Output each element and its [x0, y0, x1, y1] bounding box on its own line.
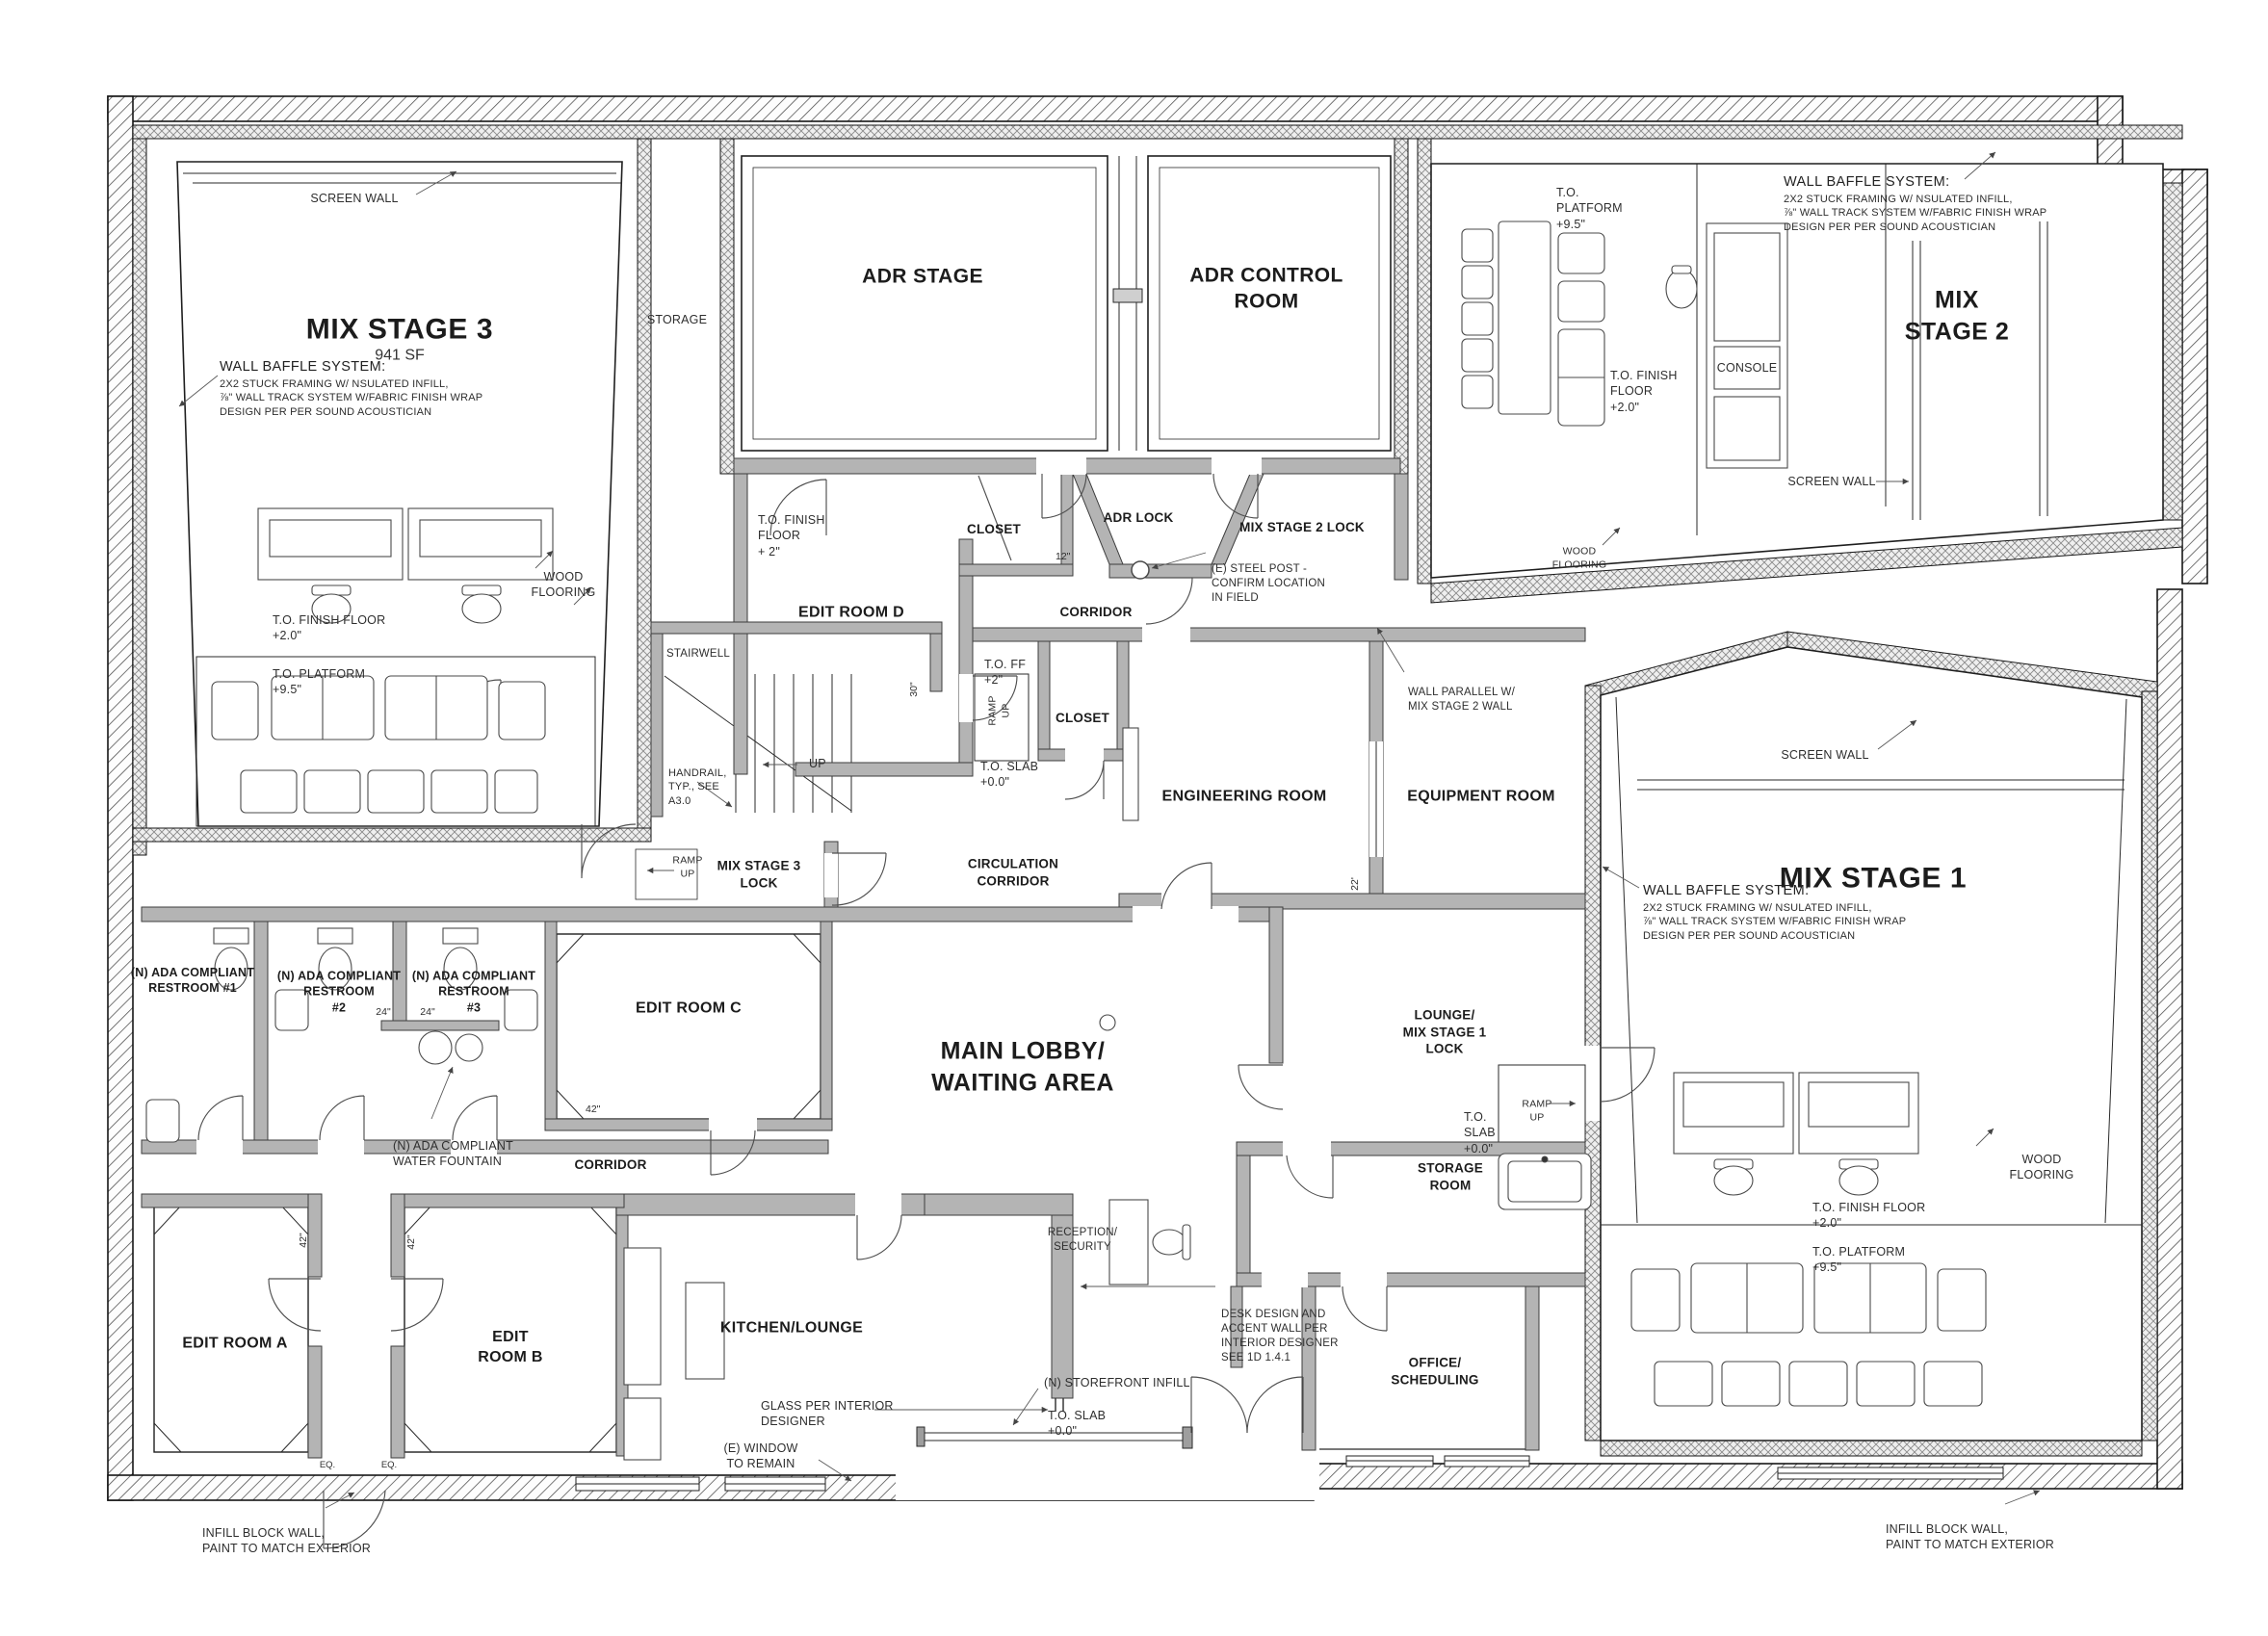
screen-wall-note-ms1: SCREEN WALL: [1781, 747, 1868, 763]
room-label-storage-room: STORAGE ROOM: [1418, 1159, 1483, 1193]
level-ff-ms2: T.O. FINISH FLOOR +2.0": [1610, 368, 1678, 415]
room-label-adr-stage: ADR STAGE: [862, 263, 983, 289]
room-label-ms2-lock: MIX STAGE 2 LOCK: [1239, 519, 1365, 536]
baffle-title-ms2: WALL BAFFLE SYSTEM:: [1784, 173, 1950, 192]
room-label-adr-control: ADR CONTROL ROOM: [1189, 263, 1343, 316]
level-toff: T.O. FF +2": [984, 657, 1026, 688]
ramp-up-stair: RAMP UP: [986, 695, 1012, 725]
dim-42-c: 42": [586, 1104, 600, 1117]
room-label-corridor-south: CORRIDOR: [574, 1156, 646, 1174]
room-label-edit-c: EDIT ROOM C: [636, 1000, 742, 1020]
room-label-kitchen: KITCHEN/LOUNGE: [720, 1319, 863, 1339]
level-ff-editd: T.O. FINISH FLOOR + 2": [758, 512, 825, 559]
up-note: UP: [809, 756, 826, 771]
wood-flooring-ms3: WOOD FLOORING: [532, 569, 596, 601]
dim-24-a: 24": [376, 1006, 390, 1020]
room-label-closet-mid: CLOSET: [1056, 710, 1109, 727]
handrail-note: HANDRAIL, TYP., SEE A3.0: [668, 766, 726, 808]
room-label-mix-stage-3: MIX STAGE 3: [306, 311, 493, 349]
baffle-body-ms2: 2X2 STUCK FRAMING W/ NSULATED INFILL, ⅞"…: [1784, 193, 2046, 234]
room-label-equipment: EQUIPMENT ROOM: [1407, 788, 1555, 808]
room-label-ms3-lock: MIX STAGE 3 LOCK: [717, 857, 801, 891]
baffle-title-ms3: WALL BAFFLE SYSTEM:: [220, 358, 386, 377]
room-label-main-lobby: MAIN LOBBY/ WAITING AREA: [931, 1036, 1114, 1099]
level-ff-ms3: T.O. FINISH FLOOR +2.0": [273, 612, 385, 644]
dim-eq-b: EQ.: [381, 1460, 397, 1471]
room-label-adr-lock: ADR LOCK: [1104, 509, 1174, 527]
room-label-office: OFFICE/ SCHEDULING: [1391, 1354, 1478, 1388]
level-platform-ms2: T.O. PLATFORM +9.5": [1556, 185, 1623, 232]
dim-24-b: 24": [420, 1006, 434, 1020]
storefront-note: (N) STOREFRONT INFILL: [1044, 1375, 1190, 1390]
steel-post-note: (E) STEEL POST - CONFIRM LOCATION IN FIE…: [1212, 562, 1325, 606]
dim-22: 22': [1349, 877, 1363, 891]
dim-42-b: 42": [405, 1234, 419, 1249]
baffle-body-ms3: 2X2 STUCK FRAMING W/ NSULATED INFILL, ⅞"…: [220, 377, 482, 419]
room-label-mix-stage-2: MIX STAGE 2: [1905, 285, 2010, 348]
screen-wall-note-ms3: SCREEN WALL: [310, 191, 398, 206]
level-slab-closet: T.O. SLAB +0.0": [980, 759, 1038, 791]
room-label-closet-north: CLOSET: [967, 521, 1021, 538]
room-label-lounge-lock: LOUNGE/ MIX STAGE 1 LOCK: [1403, 1007, 1487, 1058]
wall-parallel-note: WALL PARALLEL W/ MIX STAGE 2 WALL: [1408, 686, 1515, 714]
baffle-title-ms1: WALL BAFFLE SYSTEM:: [1643, 882, 1810, 900]
dim-12: 12": [1056, 551, 1070, 564]
floor-plan: MIX STAGE 3 941 SF SCREEN WALL WALL BAFF…: [0, 0, 2268, 1636]
room-label-storage-chase: STORAGE: [647, 312, 707, 327]
room-label-edit-a: EDIT ROOM A: [182, 1335, 287, 1355]
level-platform-ms3: T.O. PLATFORM +9.5": [273, 666, 365, 698]
desk-design-note: DESK DESIGN AND ACCENT WALL PER INTERIOR…: [1221, 1308, 1339, 1365]
room-label-restroom-1: (N) ADA COMPLIANT RESTROOM #1: [131, 965, 254, 997]
room-label-reception: RECEPTION/ SECURITY: [1048, 1226, 1117, 1255]
dim-42-a: 42": [298, 1233, 311, 1247]
dim-30: 30": [908, 682, 922, 696]
level-slab-entry: T.O. SLAB +0.0": [1048, 1408, 1106, 1440]
room-label-circulation: CIRCULATION CORRIDOR: [968, 855, 1058, 889]
wood-flooring-ms2: WOOD FLOORING: [1552, 545, 1606, 571]
glass-note: GLASS PER INTERIOR DESIGNER: [761, 1398, 894, 1430]
infill-note-left: INFILL BLOCK WALL, PAINT TO MATCH EXTERI…: [202, 1525, 371, 1557]
window-remain-note: (E) WINDOW TO REMAIN: [724, 1441, 798, 1472]
infill-note-right: INFILL BLOCK WALL, PAINT TO MATCH EXTERI…: [1886, 1521, 2054, 1553]
room-label-corridor-north: CORRIDOR: [1059, 604, 1132, 621]
ramp-up-ms3lock: RAMP UP: [672, 854, 702, 880]
water-fountain-note: (N) ADA COMPLIANT WATER FOUNTAIN: [393, 1138, 513, 1170]
console-label: CONSOLE: [1717, 360, 1778, 376]
level-slab-lounge: T.O. SLAB +0.0": [1464, 1109, 1496, 1156]
level-platform-ms1: T.O. PLATFORM +9.5": [1812, 1244, 1905, 1276]
room-label-stairwell: STAIRWELL: [666, 647, 730, 662]
baffle-body-ms1: 2X2 STUCK FRAMING W/ NSULATED INFILL, ⅞"…: [1643, 901, 1906, 943]
room-label-engineering: ENGINEERING ROOM: [1161, 788, 1326, 808]
ramp-up-lounge: RAMP UP: [1522, 1098, 1551, 1124]
room-label-edit-b: EDIT ROOM B: [478, 1328, 543, 1368]
level-ff-ms1: T.O. FINISH FLOOR +2.0": [1812, 1200, 1925, 1232]
dim-eq-a: EQ.: [320, 1460, 335, 1471]
screen-wall-note-ms2: SCREEN WALL: [1787, 474, 1875, 489]
wood-flooring-ms1: WOOD FLOORING: [2010, 1152, 2074, 1183]
room-label-edit-d: EDIT ROOM D: [798, 604, 904, 624]
plan-linework: [0, 0, 2268, 1636]
